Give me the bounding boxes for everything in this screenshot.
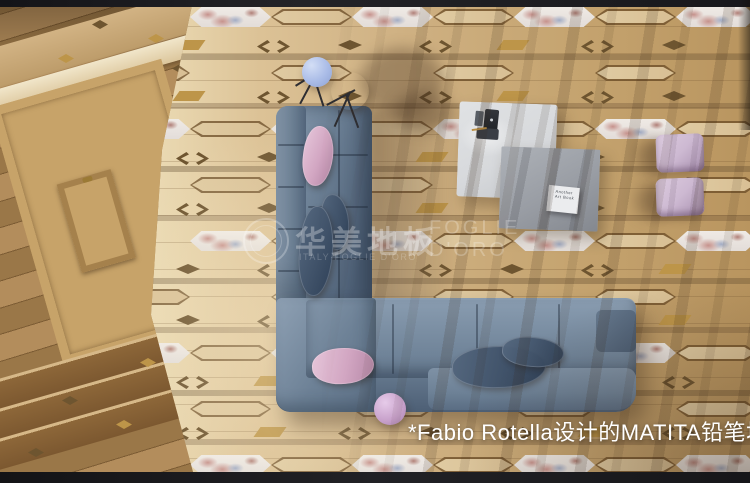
bottom-wall-strip <box>0 472 750 483</box>
window-right-section <box>1 89 156 354</box>
room-top-view: Another Art Book <box>0 0 750 483</box>
watermark-logo-circle <box>243 218 289 264</box>
watermark-logo-inner-ring <box>250 225 282 257</box>
top-wall-strip <box>0 0 750 7</box>
window-sash <box>57 169 136 273</box>
right-edge-shadow <box>738 0 750 130</box>
watermark-doro-text: D'ORO <box>429 239 508 262</box>
window-lock <box>82 175 93 183</box>
caption-text: *Fabio Rotella设计的MATITA铅笔地板 <box>408 415 750 447</box>
watermark-subtitle-text: ITALY·FOGLIE D'ORO <box>299 252 417 262</box>
watermark-foglie-text: FOGLIE <box>429 217 520 240</box>
